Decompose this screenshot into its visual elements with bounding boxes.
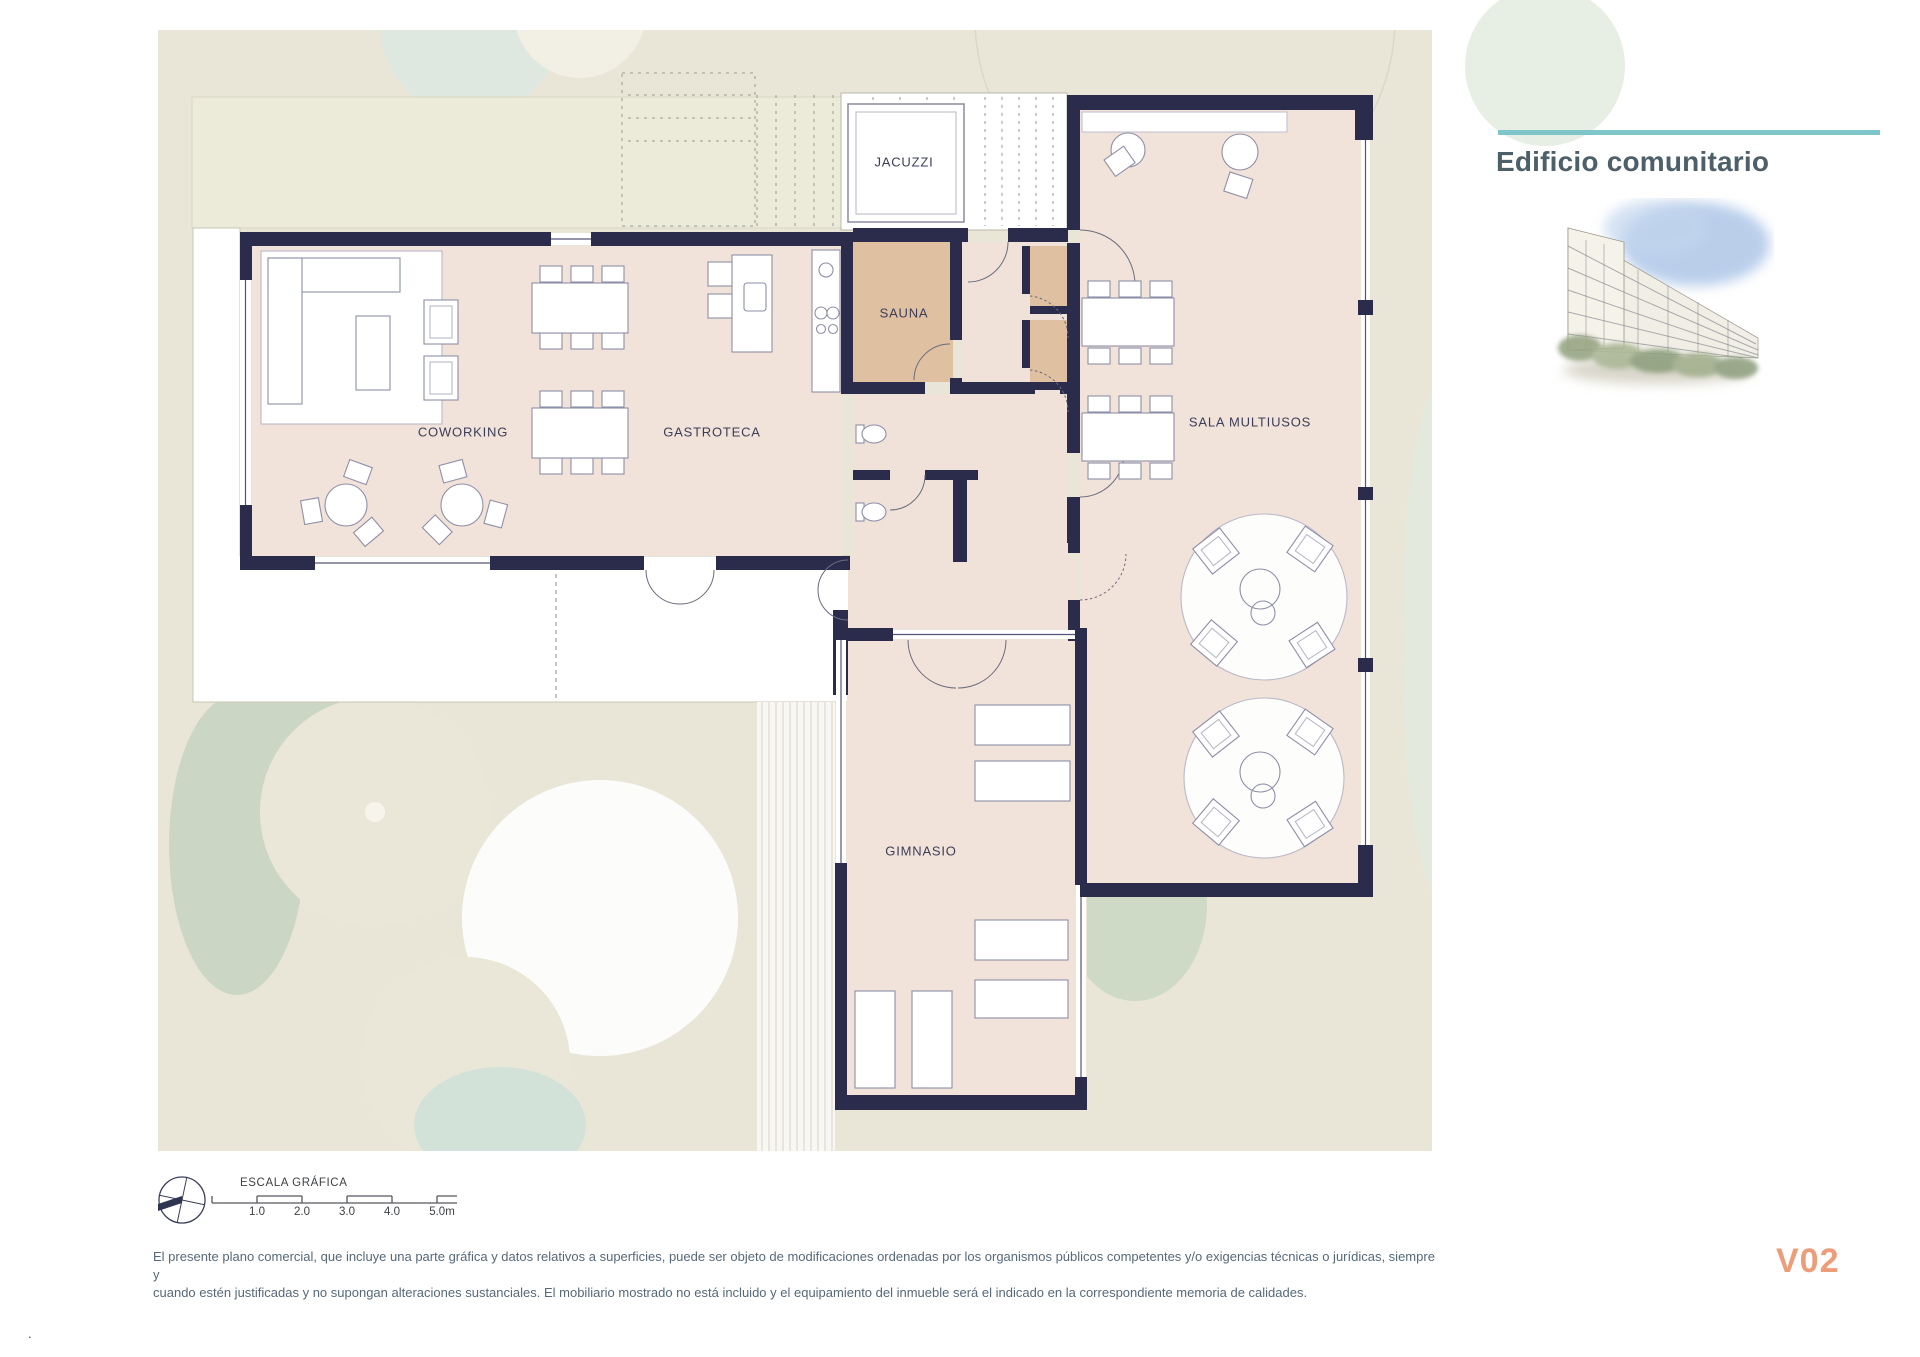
- scale-tick-label: 2.0: [294, 1206, 310, 1218]
- scale-tick-label: 3.0: [339, 1206, 355, 1218]
- disclaimer-line-1: El presente plano comercial, que incluye…: [153, 1248, 1443, 1284]
- north-arrow-icon: [158, 1177, 205, 1223]
- tree-blob: [1465, 0, 1625, 146]
- version-badge: V02: [1776, 1242, 1840, 1281]
- room-label-gimnasio: GIMNASIO: [885, 844, 956, 859]
- room-label-sala-multiusos: SALA MULTIUSOS: [1189, 415, 1311, 430]
- vestibule-floor: [848, 556, 1078, 640]
- deck-stripes: [757, 702, 835, 1151]
- corner-mark: .: [28, 1326, 32, 1341]
- room-label-jacuzzi: JACUZZI: [874, 155, 933, 170]
- disclaimer-text: El presente plano comercial, que incluye…: [153, 1248, 1443, 1302]
- room-label-gastroteca: GASTROTECA: [663, 425, 761, 440]
- room-label-sauna: SAUNA: [880, 306, 929, 321]
- dining-table-2: [532, 391, 628, 474]
- building-watercolor-illustration: [1538, 198, 1774, 402]
- disclaimer-line-2: cuando estén justificadas y no supongan …: [153, 1284, 1443, 1302]
- scale-tick-label: 5.0m: [429, 1206, 455, 1218]
- divider-rule: [1498, 130, 1880, 135]
- scale-tick-label: 1.0: [249, 1206, 265, 1218]
- scale-bar-icon: [212, 1196, 457, 1203]
- page-title: Edificio comunitario: [1496, 146, 1769, 178]
- closet-floor-2: [1030, 320, 1068, 382]
- page: { "page": { "corner_mark": "." }, "plan"…: [0, 0, 1920, 1357]
- dining-table-1: [532, 266, 628, 349]
- room-label-coworking: COWORKING: [418, 425, 508, 440]
- scale-tick-label: 4.0: [384, 1206, 400, 1218]
- scale-bar-title: ESCALA GRÁFICA: [240, 1177, 347, 1189]
